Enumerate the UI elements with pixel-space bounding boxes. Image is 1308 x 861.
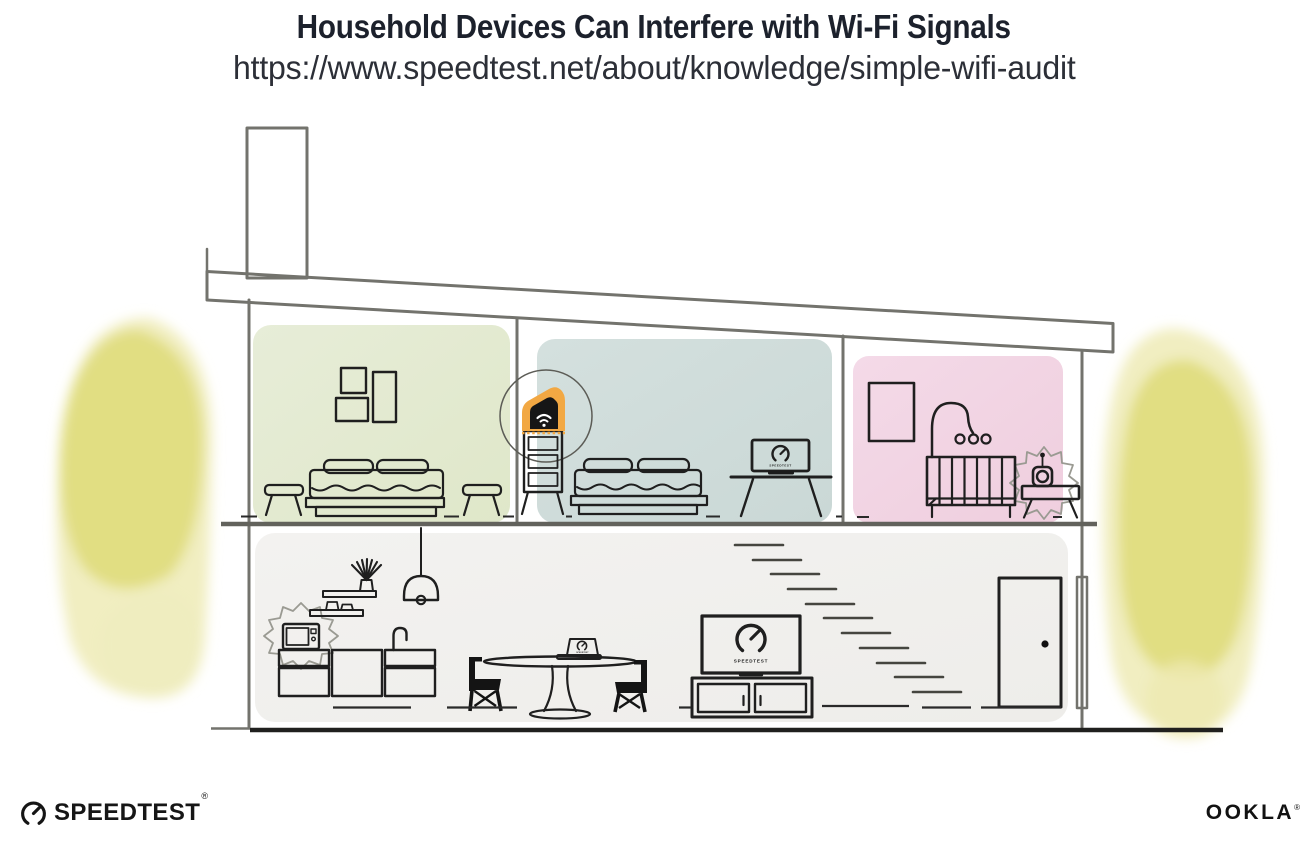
speedtest-wordmark: SPEEDTEST: [54, 799, 200, 826]
wifi-router-icon: [522, 387, 565, 433]
door-knob: [1041, 640, 1048, 647]
speedtest-gauge-icon: [20, 800, 47, 827]
laptop-screen-brand: SPEEDTEST: [769, 464, 791, 468]
tv-screen-brand: SPEEDTEST: [734, 659, 769, 664]
header: Household Devices Can Interfere with Wi-…: [0, 0, 1308, 87]
speedtest-logo: SPEEDTEST®: [20, 799, 207, 827]
bedroom-left-wall: [253, 325, 510, 523]
infographic-page: SPEEDTEST: [0, 0, 1308, 861]
registered-mark: ®: [201, 791, 208, 801]
ookla-logo: OOKLA®: [1206, 801, 1300, 825]
foliage-left: [57, 318, 213, 698]
source-url[interactable]: https://www.speedtest.net/about/knowledg…: [233, 49, 1076, 87]
laptop-screen-brand: SPEEDTEST: [576, 652, 589, 654]
registered-mark: ®: [1294, 803, 1300, 812]
chimney: [247, 128, 307, 278]
ookla-wordmark: OOKLA: [1206, 801, 1294, 824]
page-title: Household Devices Can Interfere with Wi-…: [297, 6, 1011, 47]
house-illustration: SPEEDTEST: [0, 0, 1308, 861]
foliage-right: [1103, 329, 1264, 739]
